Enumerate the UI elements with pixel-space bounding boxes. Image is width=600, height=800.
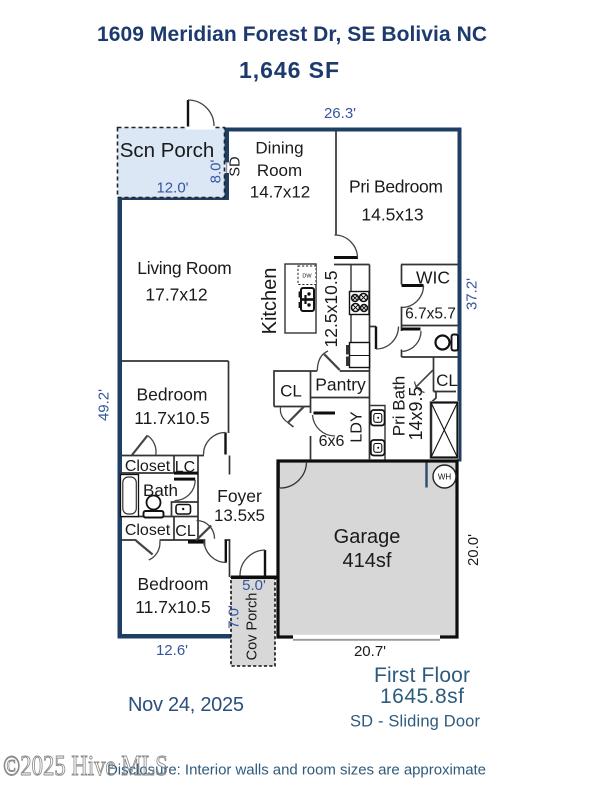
svg-text:Closet: Closet [125, 522, 171, 539]
svg-text:37.2': 37.2' [464, 278, 481, 310]
svg-text:20.7': 20.7' [354, 643, 386, 660]
svg-text:Bedroom: Bedroom [136, 385, 207, 405]
svg-text:WH: WH [438, 473, 452, 482]
svg-text:Room: Room [257, 161, 302, 180]
svg-text:Scn Porch: Scn Porch [120, 139, 215, 162]
svg-text:Pri Bedroom: Pri Bedroom [349, 177, 443, 197]
svg-text:5.0': 5.0' [242, 577, 266, 594]
svg-text:CL: CL [175, 523, 196, 540]
svg-text:6x6: 6x6 [319, 433, 345, 450]
svg-text:DW: DW [302, 274, 312, 280]
svg-text:12.0': 12.0' [156, 180, 188, 197]
svg-text:Bath: Bath [143, 481, 178, 500]
svg-text:49.2': 49.2' [95, 389, 112, 421]
svg-text:Pantry: Pantry [315, 375, 366, 395]
svg-text:LC: LC [175, 459, 195, 476]
svg-text:11.7x10.5: 11.7x10.5 [134, 408, 210, 428]
svg-text:First Floor: First Floor [374, 664, 470, 687]
svg-text:7.0': 7.0' [225, 605, 242, 629]
svg-text:11.7x10.5: 11.7x10.5 [135, 597, 211, 617]
svg-text:WIC: WIC [416, 268, 450, 288]
svg-text:Garage: Garage [334, 526, 401, 548]
svg-text:CL: CL [280, 382, 302, 401]
svg-text:SD - Sliding Door: SD - Sliding Door [350, 713, 481, 731]
svg-text:1609 Meridian Forest Dr, SE Bo: 1609 Meridian Forest Dr, SE Bolivia NC [97, 23, 487, 46]
svg-text:414sf: 414sf [343, 550, 392, 572]
svg-text:Foyer: Foyer [217, 486, 262, 506]
svg-text:Closet: Closet [125, 458, 171, 475]
svg-text:1645.8sf: 1645.8sf [380, 685, 464, 708]
svg-text:©2025 Hive MLS: ©2025 Hive MLS [3, 750, 168, 782]
svg-text:26.3': 26.3' [324, 105, 356, 122]
svg-text:CL: CL [436, 371, 458, 390]
svg-text:Bedroom: Bedroom [137, 574, 208, 594]
svg-text:6.7x5.7: 6.7x5.7 [405, 306, 456, 323]
svg-text:LDY: LDY [349, 411, 366, 442]
svg-text:17.7x12: 17.7x12 [145, 285, 207, 305]
svg-text:20.0': 20.0' [465, 534, 482, 566]
svg-text:13.5x5: 13.5x5 [214, 506, 265, 525]
svg-text:Cov Porch: Cov Porch [244, 593, 260, 661]
svg-text:Kitchen: Kitchen [259, 268, 281, 335]
svg-text:Nov 24, 2025: Nov 24, 2025 [128, 694, 244, 716]
svg-text:1,646 SF: 1,646 SF [239, 57, 339, 83]
svg-text:14.7x12: 14.7x12 [250, 183, 311, 202]
svg-text:Living Room: Living Room [137, 258, 232, 278]
svg-text:8.0': 8.0' [207, 160, 224, 184]
svg-text:14x9.5: 14x9.5 [406, 386, 426, 440]
svg-text:12.5x10.5: 12.5x10.5 [321, 271, 341, 348]
svg-text:Dining: Dining [255, 139, 303, 158]
svg-text:SD: SD [228, 156, 244, 176]
svg-text:14.5x13: 14.5x13 [361, 205, 423, 225]
svg-text:12.6': 12.6' [156, 642, 188, 659]
